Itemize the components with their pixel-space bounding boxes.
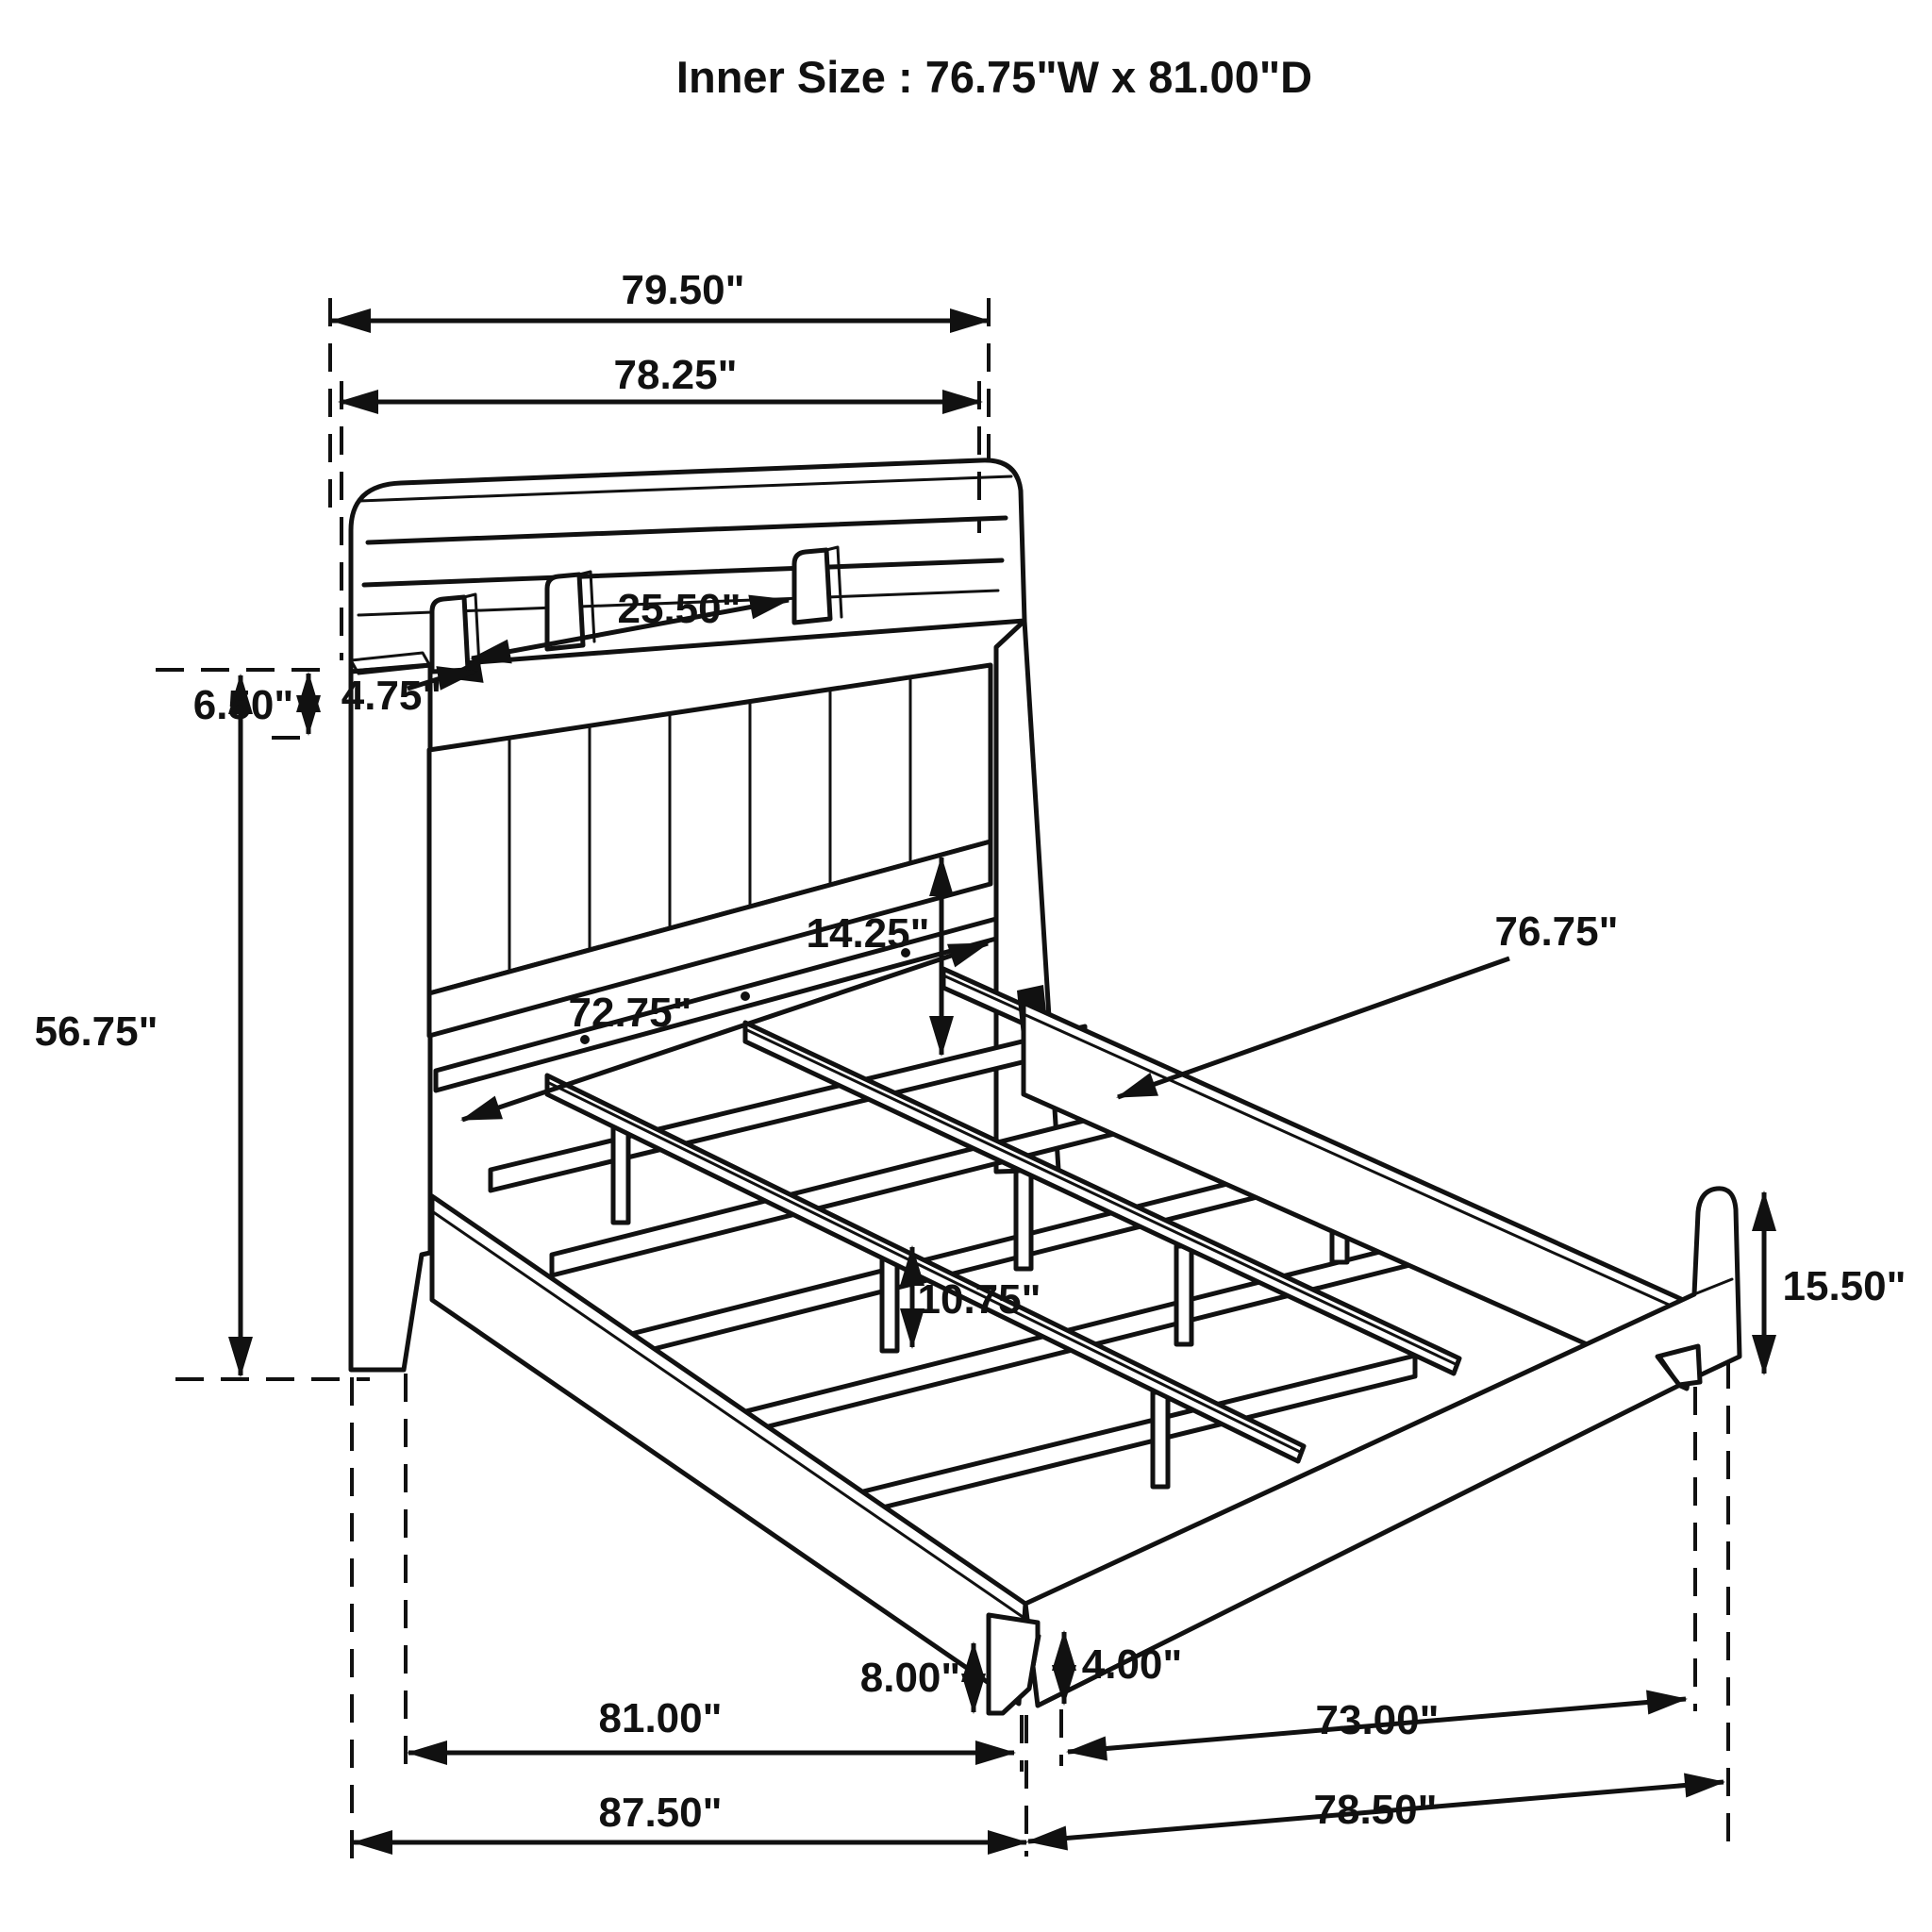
dim-hutch-height-label: 6.50" [193,682,294,728]
dim-support-leg-height-label: 10.75" [918,1276,1041,1323]
dim-overall-depth-label: 87.50" [599,1790,723,1836]
footboard-front-leg [989,1615,1038,1713]
dim-leg-taper-label: 4.00" [1082,1641,1183,1688]
dim-inner-depth-label: 81.00" [599,1695,723,1741]
dim-front-leg-height-label: 8.00" [860,1655,961,1701]
dim-headboard-height-label: 56.75" [35,1008,158,1055]
bed-dimension-diagram: Inner Size : 76.75"W x 81.00"D 79.50" 78… [0,0,1932,1932]
dim-shelf-opening-label: 25.50" [618,586,741,632]
diagram-canvas: Inner Size : 76.75"W x 81.00"D 79.50" 78… [0,0,1932,1932]
dim-side-rail-depth-label: 78.50" [1314,1787,1438,1833]
dim-inner-width-label: 72.75" [569,990,692,1036]
dim-footboard-height-label: 15.50" [1783,1263,1907,1309]
diagram-title: Inner Size : 76.75"W x 81.00"D [676,52,1312,102]
dim-rail-length-label: 76.75" [1495,908,1619,955]
dim-panel-drop-label: 14.25" [807,910,930,957]
headboard-left-post [351,665,430,1370]
dimline-rail-leader [1118,958,1509,1097]
dim-footboard-inner-width-label: 73.00" [1316,1697,1440,1743]
dim-divider-spacing-label: 4.75" [341,673,442,719]
dim-width-overall-label: 79.50" [622,267,745,313]
dim-width-top-label: 78.25" [614,352,738,398]
